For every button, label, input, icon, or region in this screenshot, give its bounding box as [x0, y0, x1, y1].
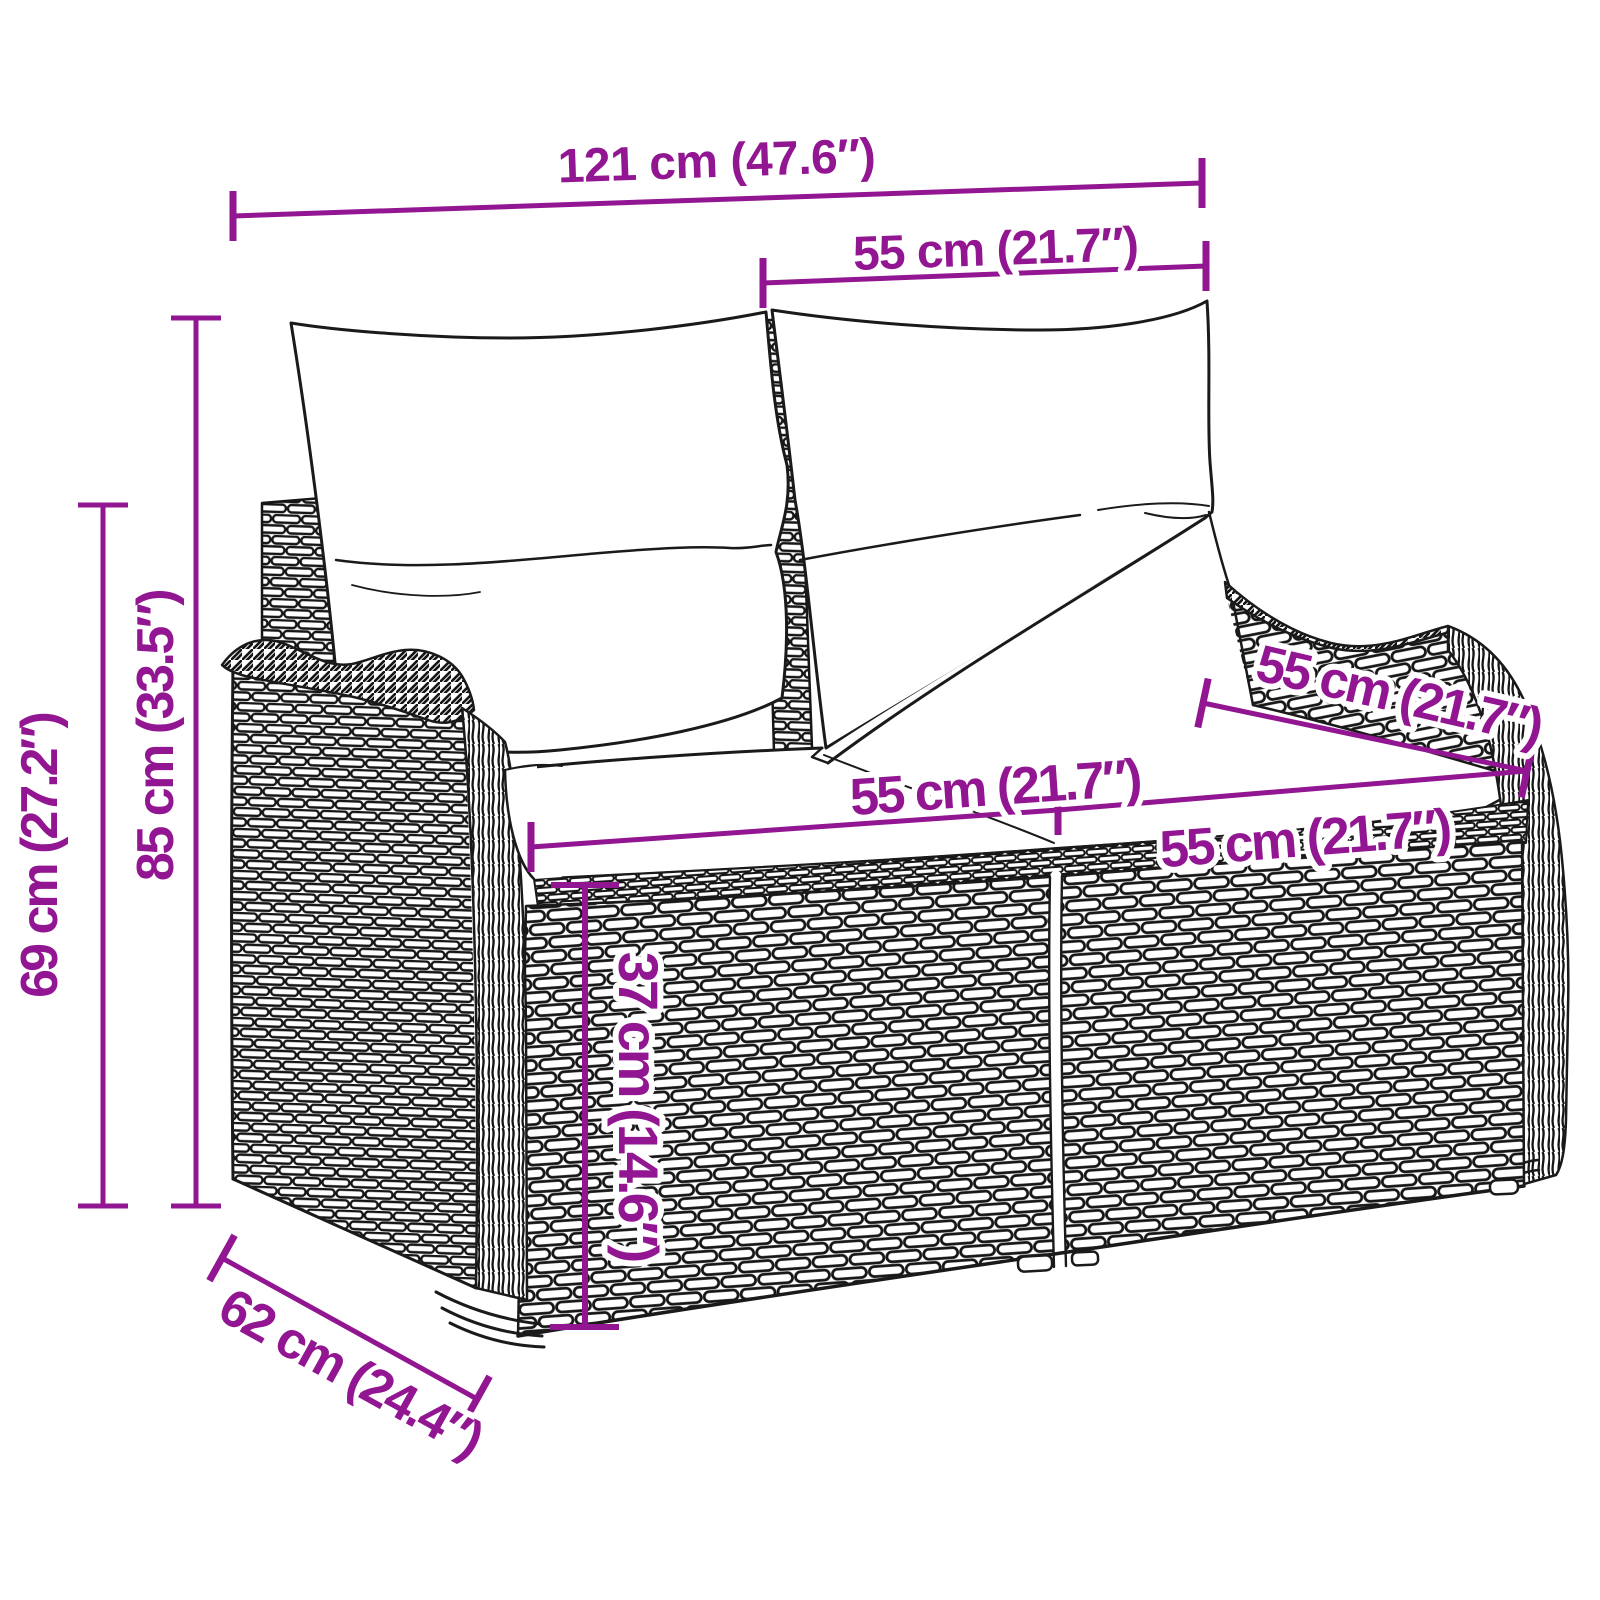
svg-text:85 cm (33.5″): 85 cm (33.5″) — [127, 591, 185, 881]
svg-text:69 cm (27.2″): 69 cm (27.2″) — [11, 713, 69, 997]
svg-text:37 cm (14.6″): 37 cm (14.6″) — [607, 952, 670, 1261]
svg-text:55 cm (21.7″): 55 cm (21.7″) — [852, 218, 1139, 281]
svg-text:121 cm (47.6″): 121 cm (47.6″) — [557, 129, 876, 193]
